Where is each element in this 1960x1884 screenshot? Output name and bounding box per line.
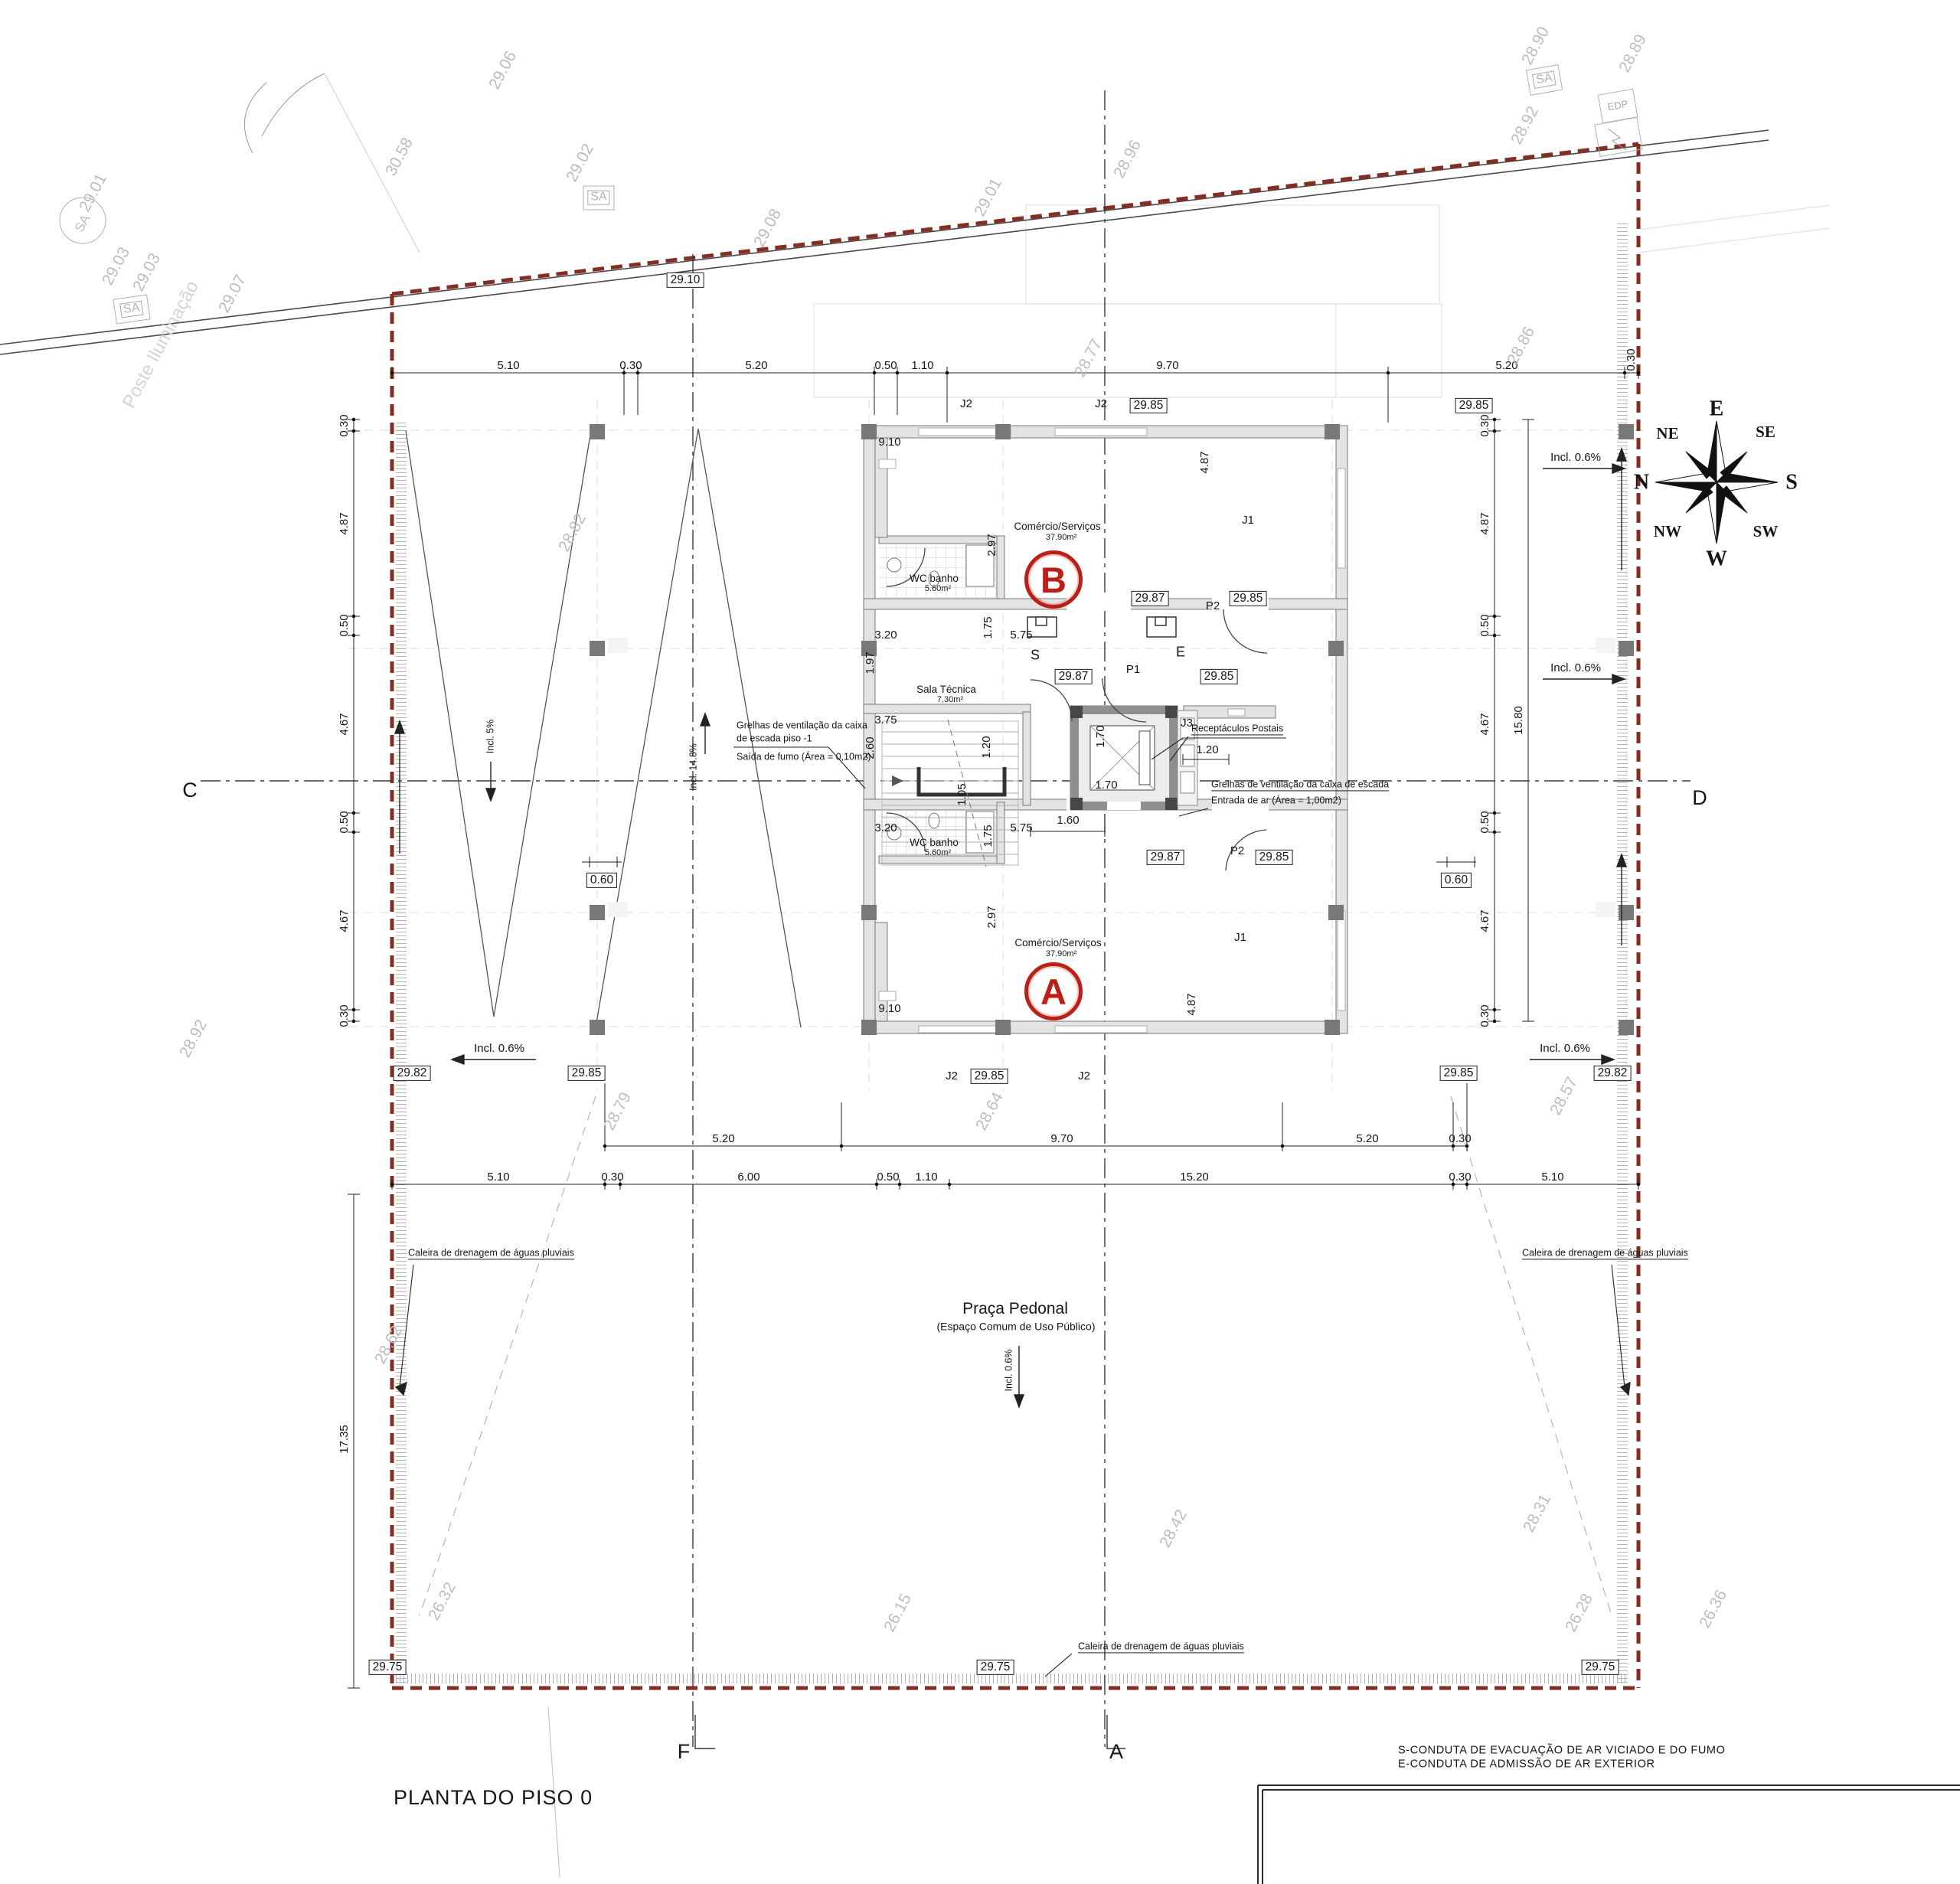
dim-label: 0.50 — [874, 360, 897, 372]
dim-label: 2.60 — [864, 736, 877, 759]
axis-label-a: A — [1109, 1741, 1123, 1762]
window-tag-j2: J2 — [1078, 1070, 1090, 1082]
slope-06-ne: Incl. 0.6% — [1550, 452, 1601, 464]
clearance-marker: 0.60 — [586, 873, 617, 888]
clearance-marker: 0.60 — [1441, 873, 1472, 888]
note-receptaculos-postais: Receptáculos Postais — [1191, 723, 1283, 735]
neighbour-outlines — [814, 205, 1830, 397]
dim-label: 1.97 — [864, 651, 877, 674]
duct-s-label: S — [1031, 648, 1040, 663]
dim-label: 1.20 — [1196, 744, 1218, 756]
dim-label: 1.70 — [1095, 779, 1117, 792]
dim-label: 5.75 — [1010, 629, 1032, 642]
ramp-148pct-label: Incl. 14.8% — [688, 743, 698, 791]
level-marker: 29.85 — [1200, 669, 1238, 684]
dim-label: 5.75 — [1010, 822, 1032, 834]
level-marker: 29.82 — [1594, 1066, 1632, 1081]
dim-label: 5.10 — [487, 1171, 509, 1184]
compass-sw-label: SW — [1753, 523, 1779, 540]
construction-grid — [348, 400, 1645, 1091]
unit-b-badge: B — [1024, 550, 1083, 609]
dim-label: 9.10 — [878, 1003, 900, 1015]
dim-label: 0.30 — [1479, 1004, 1491, 1027]
dim-label: 1.75 — [982, 824, 995, 847]
dim-label: 5.10 — [1541, 1171, 1563, 1184]
dim-label: 4.67 — [338, 713, 351, 735]
note-saida-fumo: Saída de fumo (Área = 0,10m2) — [737, 752, 871, 762]
dimension-ticks — [352, 371, 1641, 1187]
dim-label: 0.30 — [338, 414, 351, 436]
wc-b-name: WC banho — [910, 573, 959, 584]
compass-nw-label: NW — [1654, 523, 1681, 540]
axis-label-d: D — [1692, 787, 1707, 808]
slope-06-e: Incl. 0.6% — [1550, 662, 1601, 674]
dim-label: 4.67 — [1479, 909, 1491, 932]
dim-label: 4.87 — [1479, 512, 1491, 534]
dim-label: 0.30 — [1479, 414, 1491, 436]
door-tag-p1: P1 — [1126, 664, 1140, 676]
dim-label: 9.70 — [1156, 360, 1178, 372]
dim-label: 0.50 — [877, 1171, 899, 1184]
unit-b-room-area: 37.90m² — [1046, 534, 1076, 543]
level-marker: 29.75 — [1582, 1660, 1619, 1675]
axis-brackets — [695, 1715, 1125, 1748]
dim-label: 15.20 — [1180, 1171, 1209, 1184]
dim-label: 0.30 — [601, 1171, 623, 1184]
unit-a-room-area: 37.90m² — [1046, 950, 1076, 959]
window-tag-j2: J2 — [946, 1070, 958, 1082]
road-lines — [0, 130, 1769, 354]
note-grelhas-piso-l1: Grelhas de ventilação da caixa — [737, 720, 867, 730]
dim-label: 4.67 — [338, 909, 351, 932]
axis-label-c: C — [182, 779, 198, 801]
dim-label: 1.10 — [911, 360, 933, 372]
compass-w-label: W — [1706, 547, 1727, 570]
dim-label: 4.67 — [1479, 713, 1491, 735]
door-tag-p2: P2 — [1230, 845, 1244, 857]
drawing-title: PLANTA DO PISO 0 — [394, 1787, 593, 1808]
dim-label: 1.05 — [956, 783, 969, 805]
dim-label: 5.20 — [745, 360, 767, 372]
sala-tecnica-name: Sala Técnica — [916, 684, 976, 695]
dim-label: 4.87 — [338, 512, 351, 534]
plaza-name: Praça Pedonal — [962, 1301, 1068, 1317]
level-marker: 29.85 — [1256, 850, 1293, 865]
dim-label: 0.30 — [619, 360, 642, 372]
drain-hatch — [396, 224, 1628, 1684]
wc-b-area: 5.60m² — [925, 585, 951, 594]
slope-06-sw: Incl. 0.6% — [474, 1043, 524, 1055]
level-marker: 29.85 — [1440, 1066, 1478, 1081]
dim-label: 15.80 — [1513, 706, 1525, 735]
door-tag-p2: P2 — [1206, 600, 1220, 612]
dim-label: 0.50 — [338, 614, 351, 636]
unit-a-room-name: Comércio/Serviços — [1014, 938, 1101, 949]
dim-label: 9.70 — [1050, 1133, 1073, 1145]
dim-label: 5.10 — [497, 360, 519, 372]
plaza-slope-label: Incl. 0.6% — [1004, 1350, 1014, 1392]
dim-label: 0.30 — [1449, 1133, 1471, 1145]
dim-label: 6.00 — [737, 1171, 759, 1184]
dim-label: 0.30 — [1449, 1171, 1471, 1184]
dim-label: 0.30 — [338, 1004, 351, 1027]
level-marker: 29.75 — [369, 1660, 407, 1675]
sa-box-tag: SA — [587, 191, 609, 205]
title-block-border — [1258, 1785, 1960, 1884]
level-marker: 29.87 — [1055, 669, 1093, 684]
dim-label: 3.20 — [874, 822, 897, 834]
unit-a-badge: A — [1024, 962, 1083, 1020]
legend-line-2: E-CONDUTA DE ADMISSÃO DE AR EXTERIOR — [1398, 1758, 1655, 1770]
dim-label: 1.75 — [982, 616, 995, 638]
compass-e-label: E — [1710, 397, 1724, 420]
elevator-core — [1070, 706, 1197, 810]
dim-label: 1.10 — [915, 1171, 937, 1184]
grid-axes — [201, 90, 1690, 1747]
note-caleira-left: Caleira de drenagem de águas pluviais — [408, 1248, 574, 1259]
floor-plan-sheet: PLANTA DO PISO 0 S-CONDUTA DE EVACUAÇÃO … — [0, 0, 1960, 1884]
dim-label: 9.10 — [878, 436, 900, 449]
plan-linework — [0, 0, 1960, 1884]
dim-label: 5.20 — [712, 1133, 734, 1145]
note-caleira-right: Caleira de drenagem de águas pluviais — [1522, 1248, 1688, 1259]
note-entrada-ar: Entrada de ar (Área = 1,00m2) — [1211, 795, 1341, 805]
dim-label: 0.50 — [1479, 811, 1491, 833]
ramp-5pct-label: Incl. 5% — [485, 720, 495, 753]
dim-label: 3.75 — [874, 714, 897, 726]
note-grelhas-piso-l2: de escada piso -1 — [737, 733, 812, 743]
level-marker: 29.85 — [1455, 398, 1493, 413]
compass-ne-label: NE — [1656, 425, 1678, 442]
dim-label: 2.97 — [986, 534, 998, 556]
dim-label: 5.20 — [1356, 1133, 1378, 1145]
unit-b-room-name: Comércio/Serviços — [1014, 521, 1100, 532]
dim-label: 4.87 — [1199, 451, 1211, 473]
level-marker: 29.85 — [1230, 591, 1267, 606]
level-marker: 29.85 — [971, 1069, 1008, 1084]
dim-label: 0.50 — [338, 811, 351, 833]
level-marker: 29.87 — [1147, 850, 1184, 865]
window-tag-j2: J2 — [960, 398, 972, 410]
duct-e-label: E — [1176, 645, 1185, 660]
dim-label: 2.97 — [986, 906, 998, 928]
compass-s-label: S — [1785, 471, 1798, 493]
level-marker: 29.75 — [977, 1660, 1014, 1675]
window-tag-j1: J1 — [1242, 514, 1254, 527]
note-caleira-bottom: Caleira de drenagem de águas pluviais — [1078, 1641, 1244, 1653]
property-boundary — [392, 144, 1638, 1688]
level-marker: 29.10 — [667, 273, 704, 288]
level-marker: 29.82 — [394, 1066, 431, 1081]
compass-se-label: SE — [1756, 423, 1775, 440]
sala-tecnica-area: 7.30m² — [937, 696, 963, 705]
dim-label: 0.50 — [1479, 614, 1491, 636]
dim-label: 1.60 — [1057, 815, 1079, 827]
legend-line-1: S-CONDUTA DE EVACUAÇÃO DE AR VICIADO E D… — [1398, 1745, 1725, 1756]
slope-arrows — [395, 449, 1630, 1407]
slope-06-se: Incl. 0.6% — [1540, 1043, 1590, 1055]
window-tag-j1: J1 — [1234, 932, 1246, 944]
dim-label: 1.70 — [1095, 725, 1107, 747]
plaza-subtitle: (Espaço Comum de Uso Público) — [937, 1321, 1096, 1333]
dim-label: 1.20 — [981, 736, 993, 758]
level-marker: 29.87 — [1132, 591, 1169, 606]
wc-a-area: 5.60m² — [925, 849, 951, 858]
window-tag-j3: J3 — [1181, 717, 1193, 730]
dim-label: 17.35 — [338, 1425, 351, 1454]
duct-boxes — [1027, 617, 1176, 637]
level-marker: 29.85 — [1130, 398, 1168, 413]
dim-label: 0.30 — [1625, 348, 1638, 371]
window-tag-j2: J2 — [1095, 398, 1107, 410]
axis-label-f: F — [678, 1741, 691, 1762]
wc-a-name: WC banho — [910, 838, 959, 848]
survey-symbols — [60, 65, 1642, 324]
dim-label: 4.87 — [1186, 993, 1198, 1015]
dim-label: 3.20 — [874, 629, 897, 642]
note-grelhas-l1: Grelhas de ventilação da caixa de escada — [1211, 779, 1389, 791]
level-marker: 29.85 — [568, 1066, 606, 1081]
plaza-drain-lines — [420, 1096, 1612, 1615]
compass-n-label: N — [1634, 471, 1649, 493]
